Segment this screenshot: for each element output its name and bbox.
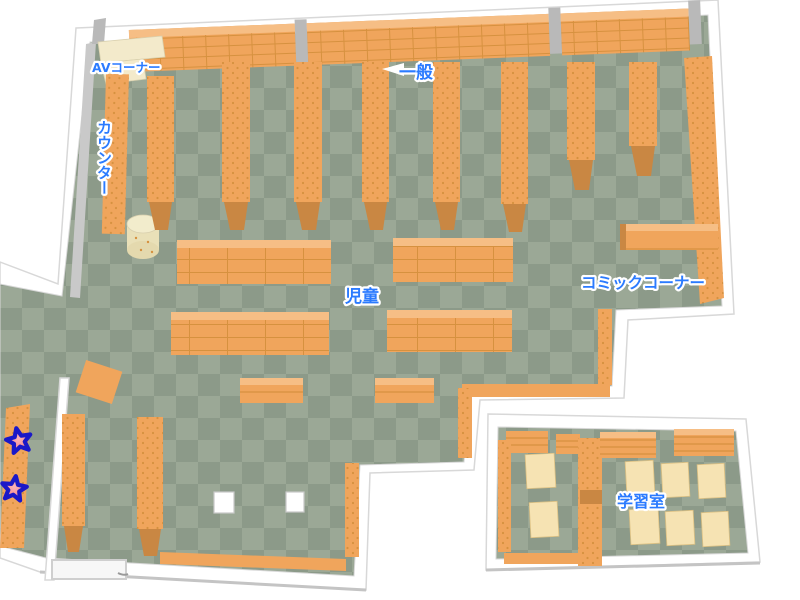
- study-desk: [625, 460, 655, 495]
- comic-corner-shelf: [620, 224, 718, 250]
- bookshelf-column: [501, 62, 528, 232]
- study-desk: [697, 463, 726, 498]
- kiosk-box: [214, 492, 234, 513]
- bookshelf-column: [567, 62, 595, 190]
- area-label-counter: カウンター: [95, 120, 113, 195]
- bookshelf-column: [62, 414, 85, 552]
- children-bookshelf: [393, 238, 513, 282]
- study-shelf: [600, 432, 656, 458]
- study-shelf: [674, 429, 734, 456]
- pillar: [548, 7, 562, 53]
- library-floor-map: AVコーナー 一般 カウンター 児童 コミックコーナー 学習室: [0, 0, 800, 600]
- reading-bench: [375, 378, 434, 403]
- study-shelf: [556, 434, 580, 454]
- floor-map-svg: AVコーナー 一般 カウンター 児童 コミックコーナー 学習室: [0, 0, 800, 600]
- wall-shelf-strip: [598, 309, 612, 385]
- bookshelf-column: [294, 62, 322, 230]
- study-desk: [665, 510, 695, 545]
- bookshelf-column: [147, 76, 174, 230]
- pillar: [688, 0, 702, 44]
- wall-shelf-strip: [345, 463, 359, 557]
- children-bookshelf: [177, 240, 331, 284]
- bookshelf-column: [137, 417, 163, 556]
- study-desk: [525, 453, 556, 488]
- children-bookshelf: [387, 310, 512, 352]
- kiosk-box: [286, 492, 304, 512]
- bookshelf-column: [433, 62, 460, 230]
- pillar: [295, 19, 309, 65]
- reading-bench: [240, 378, 303, 403]
- wall-shelf-strip: [498, 440, 511, 552]
- bookshelf-column: [362, 62, 389, 230]
- bookshelf-column: [222, 62, 250, 230]
- area-label-av-corner: AVコーナー: [92, 60, 161, 75]
- wall-shelf-strip: [504, 553, 582, 564]
- area-label-study-room: 学習室: [617, 492, 665, 511]
- area-label-comic-corner: コミックコーナー: [581, 274, 705, 292]
- study-desk: [701, 511, 730, 546]
- study-desk: [629, 508, 660, 544]
- area-label-general: 一般: [399, 62, 433, 83]
- study-shelf: [506, 431, 548, 453]
- children-bookshelf: [171, 312, 329, 355]
- divider-shelf: [578, 438, 602, 566]
- entrance-door: [52, 560, 128, 579]
- wall-shelf-strip: [462, 384, 610, 397]
- study-desk: [529, 501, 559, 537]
- corner-pillar: [92, 18, 106, 44]
- area-label-children: 児童: [344, 286, 379, 307]
- wall-shelf-strip: [458, 388, 472, 458]
- study-desk: [661, 462, 690, 497]
